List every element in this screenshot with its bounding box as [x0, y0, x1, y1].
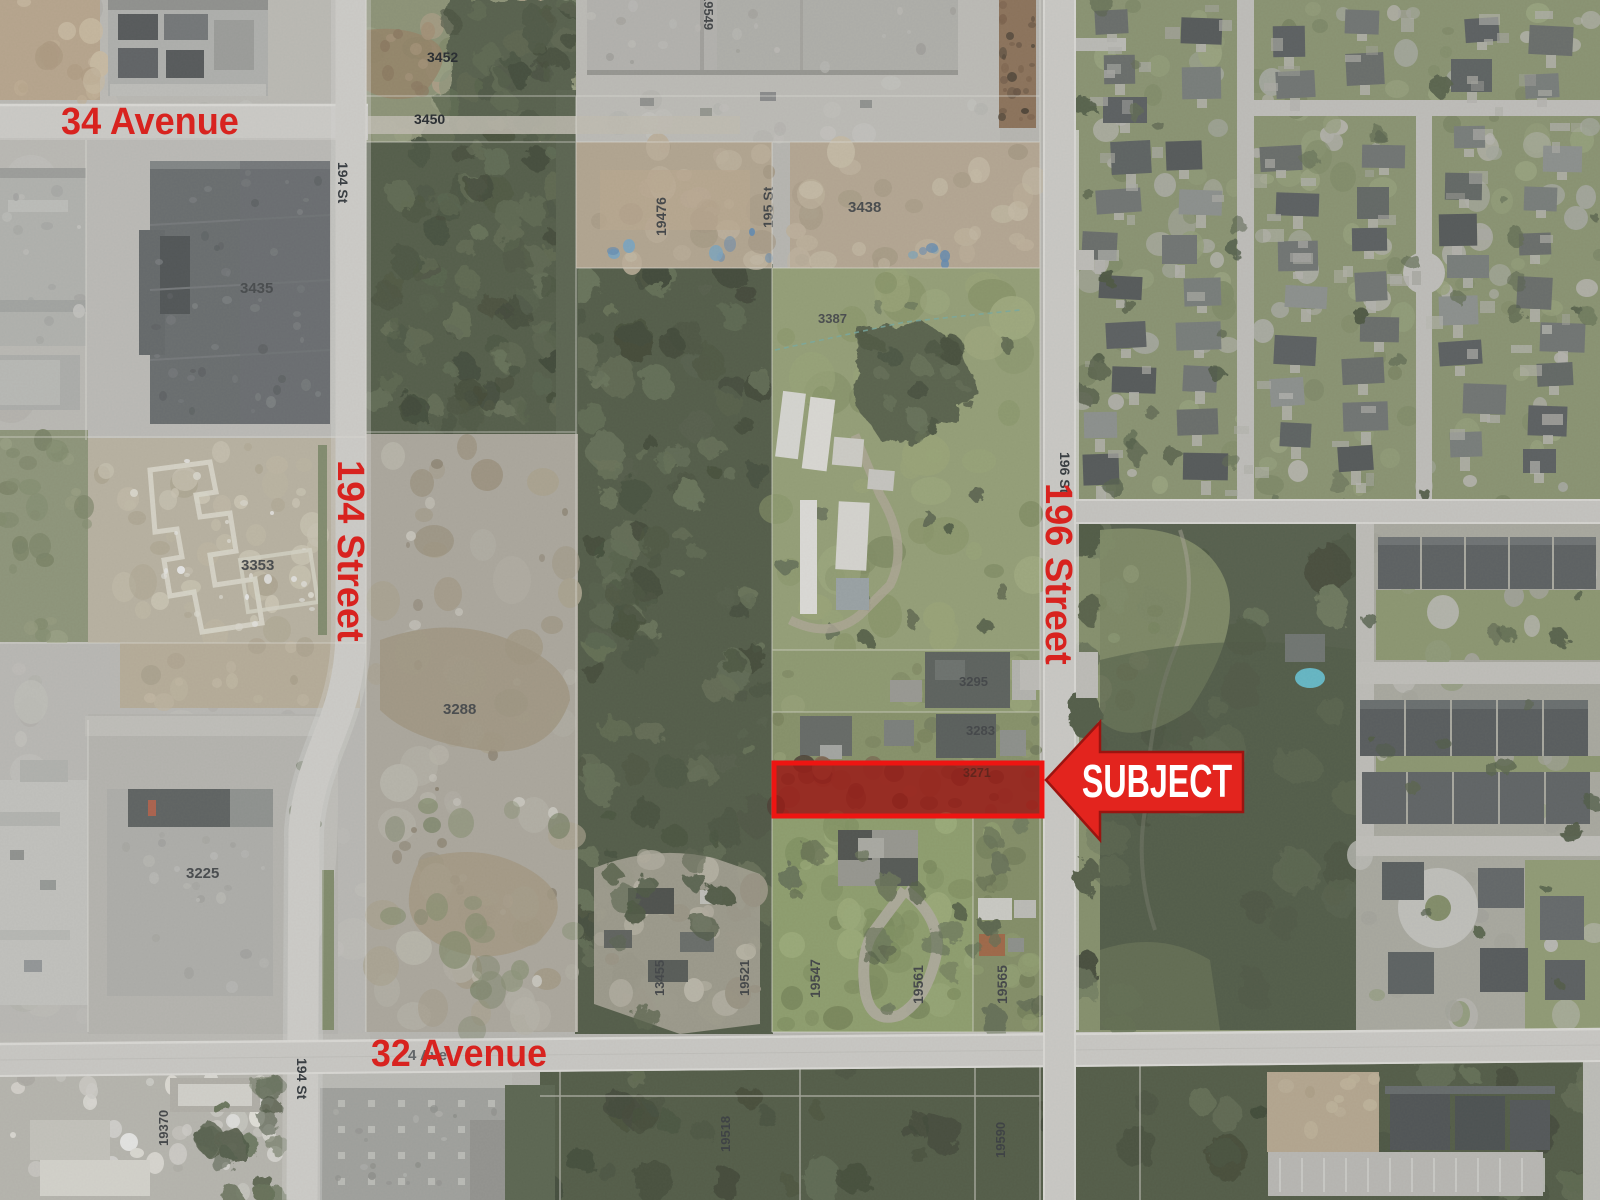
svg-text:196 Street: 196 Street [1037, 483, 1079, 665]
svg-text:194 Street: 194 Street [329, 460, 371, 642]
svg-text:3271: 3271 [963, 766, 991, 780]
svg-text:194 St: 194 St [335, 162, 351, 204]
svg-text:3450: 3450 [414, 111, 445, 127]
svg-text:3452: 3452 [427, 49, 458, 65]
svg-text:SUBJECT: SUBJECT [1082, 756, 1232, 807]
svg-text:194 St: 194 St [294, 1058, 310, 1100]
svg-text:32 Avenue: 32 Avenue [371, 1032, 547, 1074]
svg-text:34 Avenue: 34 Avenue [61, 99, 239, 142]
